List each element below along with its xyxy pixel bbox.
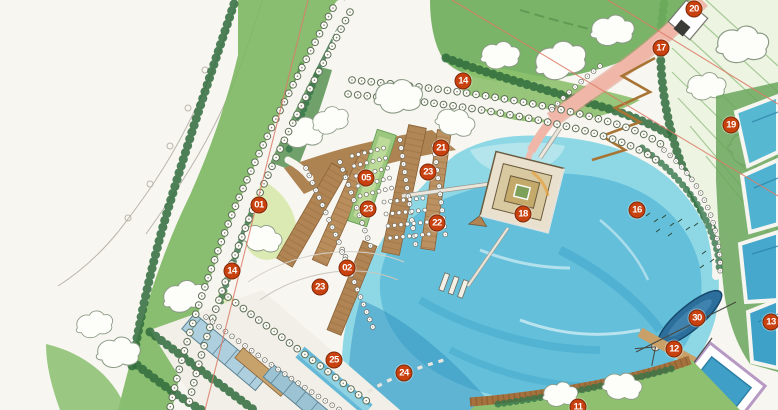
masterplan-canvas: 2017141921230501231618220214233013122524…: [0, 0, 778, 410]
plan-marker-30: 30: [689, 310, 706, 327]
plan-marker-21: 21: [433, 140, 450, 157]
plan-marker-05: 05: [358, 170, 375, 187]
plan-marker-23: 23: [312, 279, 329, 296]
plan-marker-14: 14: [224, 263, 241, 280]
plan-marker-25: 25: [326, 352, 343, 369]
plan-marker-13: 13: [763, 314, 778, 331]
plan-marker-14: 14: [455, 73, 472, 90]
plan-marker-02: 02: [339, 260, 356, 277]
plan-marker-12: 12: [666, 341, 683, 358]
plan-marker-23: 23: [360, 201, 377, 218]
plan-marker-17: 17: [653, 40, 670, 57]
plan-marker-11: 11: [570, 399, 587, 410]
plan-marker-22: 22: [429, 215, 446, 232]
plan-marker-20: 20: [686, 1, 703, 18]
plan-marker-16: 16: [629, 202, 646, 219]
plan-marker-24: 24: [396, 365, 413, 382]
plan-drawing: [0, 0, 778, 410]
plan-marker-23: 23: [420, 164, 437, 181]
plan-marker-01: 01: [251, 197, 268, 214]
plan-marker-18: 18: [515, 206, 532, 223]
plan-marker-19: 19: [723, 117, 740, 134]
